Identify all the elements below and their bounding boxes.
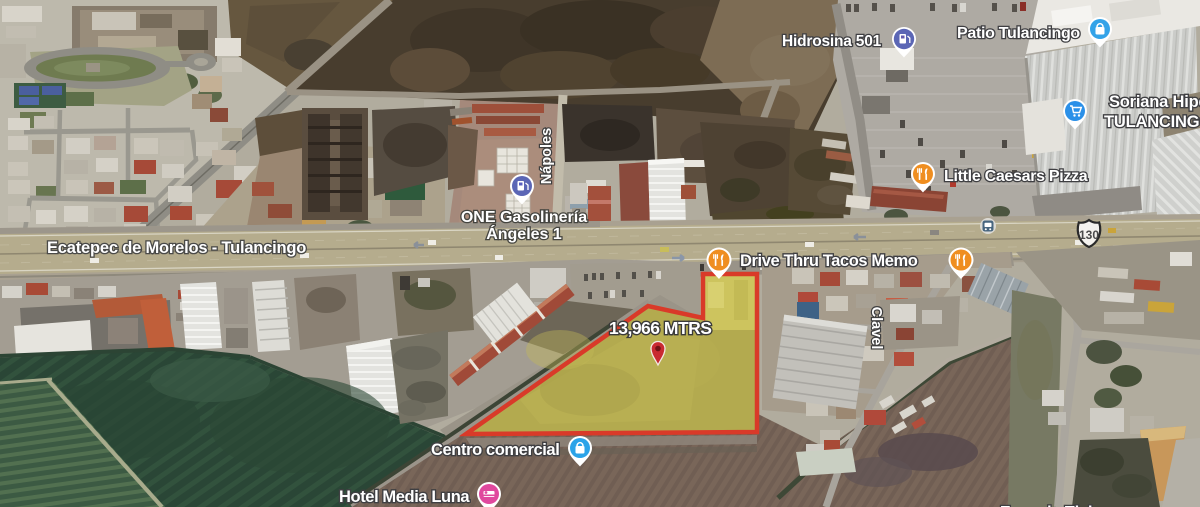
svg-text:Hotel Media Luna: Hotel Media Luna [339,488,470,506]
svg-text:Ángeles 1: Ángeles 1 [486,224,562,243]
svg-text:Little Caesars Pizza: Little Caesars Pizza [944,168,1088,185]
svg-text:TULANCINGO: TULANCINGO [1104,113,1200,131]
svg-text:ONE Gasolinería: ONE Gasolinería [461,209,587,226]
svg-text:Hidrosina 501: Hidrosina 501 [782,33,882,50]
svg-text:Nápoles: Nápoles [539,128,555,184]
svg-text:Soriana Hiper: Soriana Hiper [1109,93,1200,111]
svg-text:Ecatepec de Morelos - Tulancin: Ecatepec de Morelos - Tulancingo [47,239,306,257]
svg-text:Drive Thru Tacos Memo: Drive Thru Tacos Memo [740,252,918,270]
svg-text:Centro comercial: Centro comercial [431,441,559,459]
svg-text:13,966 MTRS: 13,966 MTRS [609,318,711,338]
svg-text:130: 130 [1079,228,1099,242]
svg-text:Patio Tulancingo: Patio Tulancingo [957,25,1080,42]
svg-text:Clavel: Clavel [868,307,884,350]
